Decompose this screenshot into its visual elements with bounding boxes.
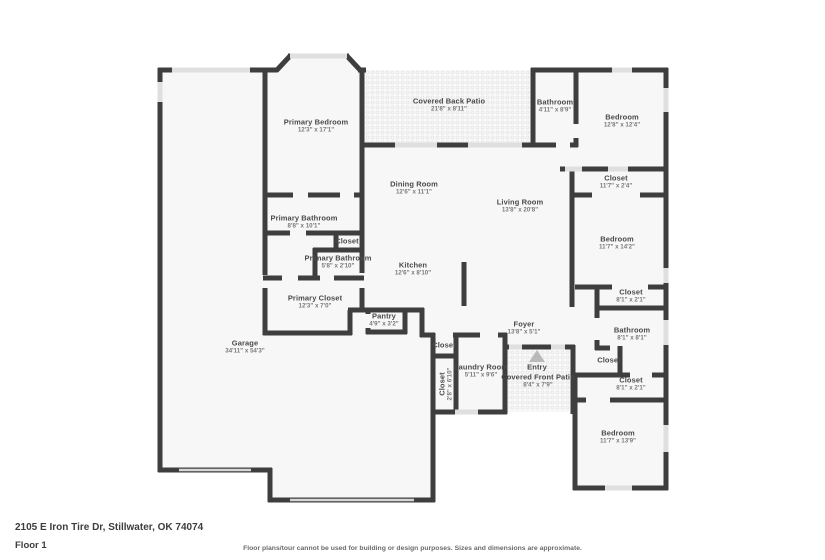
disclaimer-text: Floor plans/tour cannot be used for buil…: [0, 545, 825, 552]
property-address: 2105 E Iron Tire Dr, Stillwater, OK 7407…: [15, 522, 203, 533]
floorplan-canvas: [0, 0, 825, 560]
floorplan-page: Primary Bedroom12'3" x 17'1"Covered Back…: [0, 0, 825, 560]
covered-back-patio-area: [364, 70, 531, 143]
